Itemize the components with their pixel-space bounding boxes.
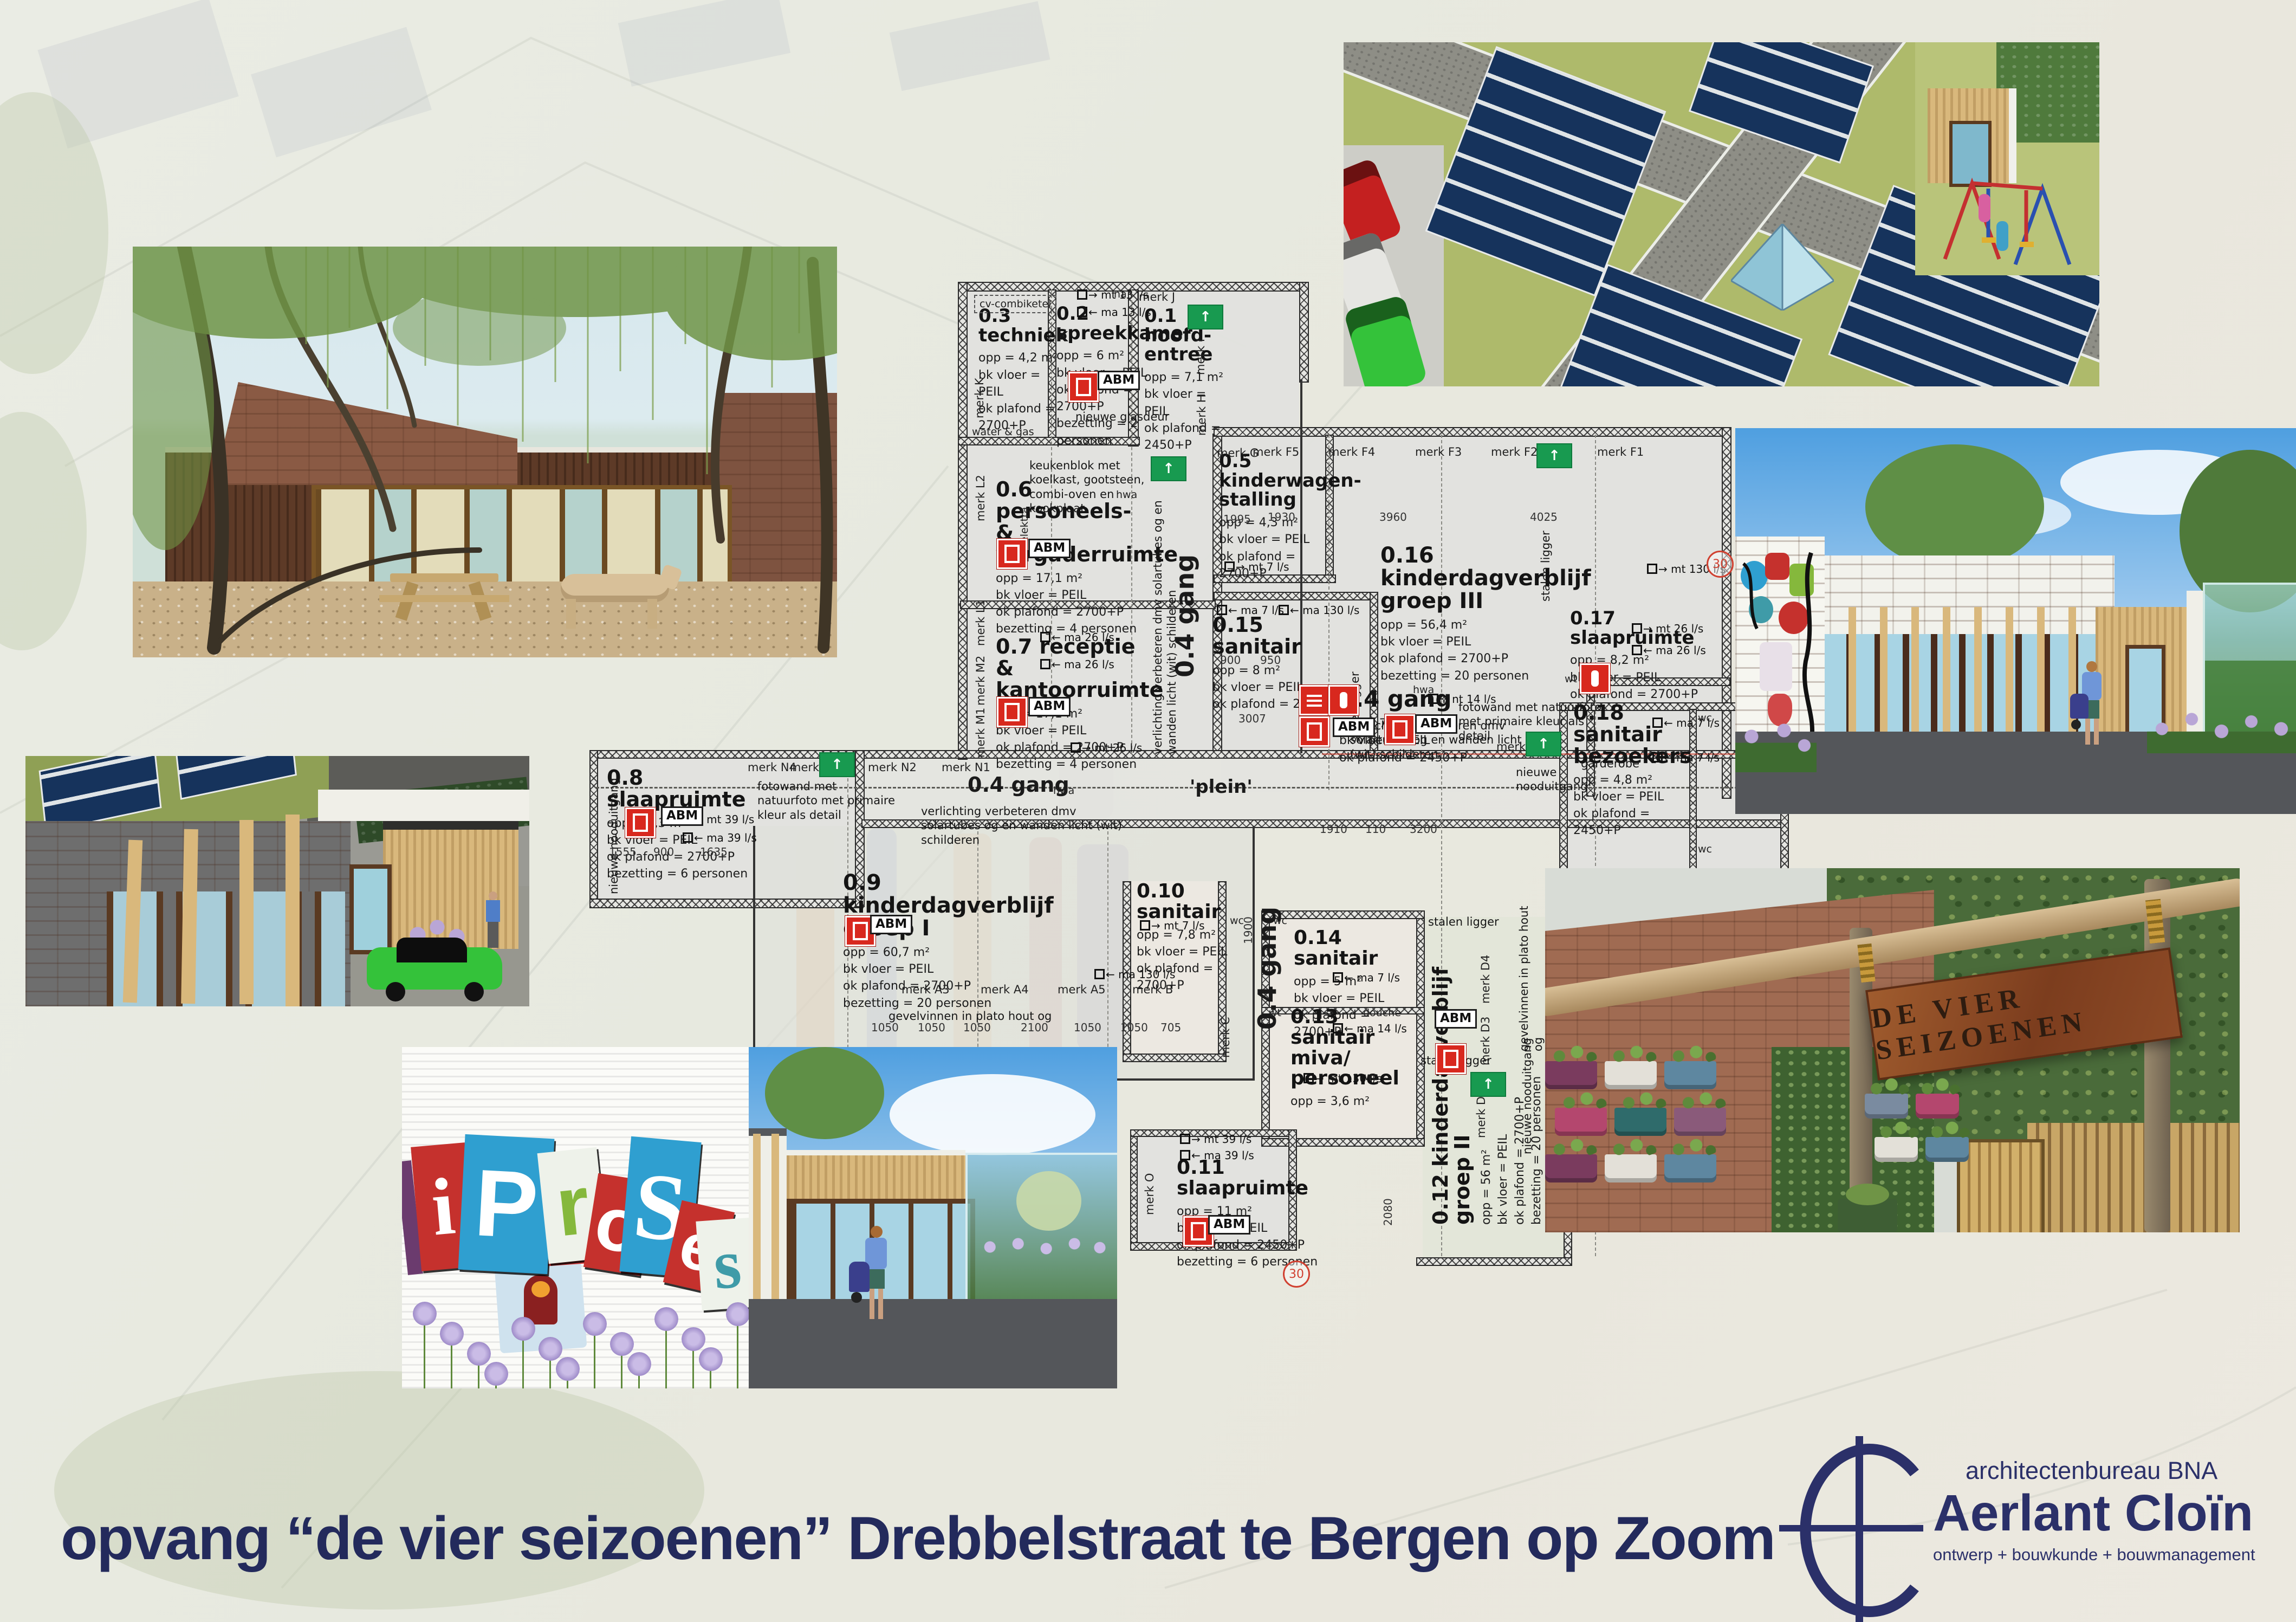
render-aerial [1344,42,2099,386]
planter-plants [1601,1137,1660,1158]
exit-sign-icon: ↑ [1470,1072,1506,1097]
abm-badge: ABM [661,806,703,826]
plan-note: verlichting verbeteren dmv solartubes og… [921,804,1124,847]
plan-note: nieuwe nooduitgang [1520,1019,1534,1154]
exit-sign-icon: ↑ [1526,732,1561,757]
vent-text: ← ma 7 l/s [1228,604,1284,617]
vent-label: ✛ nt 14 l/s [1428,693,1496,706]
allium-flower [583,1312,607,1336]
plan-grid-line [1107,826,1108,1080]
dimension-text: 1050 [871,1021,899,1034]
dimension-text: 950 [1260,654,1281,667]
kid-figure-1 [1979,194,1990,222]
merk-label: merk A3 [901,983,950,996]
vent-text: ✛ nt 14 l/s [1439,693,1496,706]
vent-icon [1303,1073,1314,1083]
plan-wall [589,750,598,907]
plan-wall [1214,427,1731,437]
fixture-label: elektra [1019,507,1030,543]
plan-wall [1214,592,1378,600]
fin-row [1825,607,2096,737]
plan-wall [1722,427,1731,799]
abm-badge: ABM [1028,697,1071,716]
fire-alarm-button-icon-glyph [1392,720,1408,739]
facade-windows [107,891,345,1006]
flower-bed-left [1735,713,1817,772]
fixture-label: hwa [1053,785,1074,797]
merk-label: merk N2 [868,761,917,774]
photo-courtyard [133,247,837,657]
logo-tagline: ontwerp + bouwkunde + bouwmanagement [1933,1545,2255,1565]
dimension-text: 1910 [1320,823,1347,836]
vent-text: ← ma 13 l/s [1088,306,1151,319]
render-entrance-facade [1735,428,2296,814]
fire-alarm-button-icon-glyph [1004,545,1020,563]
room-specs: opp = 17,1 m² bk vloer = PEIL ok plafond… [996,570,1142,638]
room-specs: opp = 4,2 m² bk vloer = PEIL ok plafond … [978,350,1062,434]
logo: architectenbureau BNA Aerlant Cloïn ontw… [1933,1457,2255,1565]
merk-label: merk C [1219,1017,1232,1058]
merk-label: merk N4 [748,761,796,774]
vent-icon [1333,972,1343,983]
fire-extinguisher-icon-glyph [1591,670,1599,687]
dimension-text: 3007 [1238,712,1266,725]
room-title: 0.5 kinderwagen- stalling [1219,452,1325,510]
exit-arrow-icon: ↑ [1199,309,1211,325]
plan-note: nieuwe nooduitgang [607,748,621,894]
exit-sign-icon: ↑ [1151,456,1186,481]
vent-text: ← ma 39 l/s [694,831,757,844]
kid-figure-2 [1996,221,2008,251]
vent-label: ← ma 39 l/s [683,831,757,844]
vent-text: ← ma 26 l/s [1643,644,1706,657]
fixture-label: hwa [1116,489,1137,501]
plan-wall [1123,1054,1227,1062]
planter-box [1674,1108,1726,1136]
timber-fin-3 [239,820,254,1004]
vent-icon [1040,632,1050,642]
fixture-label: wt [1565,673,1577,685]
dimension-text: 3200 [1410,823,1437,836]
plan-wall [1416,1257,1572,1266]
merk-label: merk M2 [974,656,987,706]
planter-box [1664,1154,1716,1182]
dimension-text: 900 [653,845,674,858]
room-title: 0.16 kinderdagverblijf groep III [1380,544,1613,612]
fire-alarm-button-icon [997,539,1027,569]
corridor-label: 'plein' [1190,776,1253,798]
swing-set [1934,134,2097,275]
plan-wall [1299,282,1309,383]
plan-wall [589,899,864,908]
room-title: 0.11 slaapruimte [1177,1158,1342,1199]
abm-badge: ABM [1333,718,1375,737]
dimension-text: 3960 [1379,510,1407,524]
vent-label: ← ma 7 l/s [1217,604,1284,617]
vent-icon [1217,605,1227,615]
man-figure [486,891,500,948]
timber-fin-4 [286,815,300,1006]
fire-alarm-button-icon [1299,716,1329,747]
fire-alarm-button-icon [1436,1044,1466,1074]
dimension-text: 900 [1220,654,1241,667]
planter-plants [1611,1090,1670,1111]
vent-icon [1279,605,1289,615]
vent-text: ← ma 26 l/s [1052,658,1114,671]
woman-stroller-2 [849,1226,898,1321]
planter-plants [1912,1076,1962,1097]
allium-flower [654,1307,678,1331]
fire-alarm-button-icon [997,697,1027,727]
allium-flower [539,1337,562,1361]
allium-flower [627,1352,651,1376]
fire-alarm-button-icon [625,807,656,838]
vent-label: ← ma 7 l/s [1652,751,1720,764]
vent-icon [1040,659,1050,669]
planter-plants [1661,1044,1720,1064]
vent-icon [1632,645,1642,655]
fixture-label: wc [1273,915,1287,927]
room-label-0.11: 0.11 slaapruimteopp = 11 m² bk vloer = P… [1177,1158,1342,1271]
ground-pot [1838,1199,1897,1232]
merk-label: merk I [1194,339,1207,375]
fixture-label: wt [1269,1007,1281,1019]
exit-sign-icon: ↑ [819,752,855,777]
planter-wall-mid [1865,1080,1973,1182]
exit-arrow-icon: ↑ [831,757,843,773]
exit-arrow-icon: ↑ [1163,461,1175,477]
plan-note: nieuwe nooduitgang [1516,765,1592,794]
dimension-text: 1930 [1268,510,1295,524]
entrance-render [749,1047,1117,1388]
fixture-label: wc [1364,1071,1378,1083]
vent-label: → mt 13 l/s [1077,288,1149,301]
vent-text: ← ma 7 l/s [1664,751,1720,764]
exit-sign-icon: ↑ [1536,443,1572,468]
planter-box [1614,1108,1666,1136]
plan-note: garderobe [1581,757,1662,771]
vent-label: → mt 26 l/s [1632,622,1703,635]
fire-alarm-button-icon-glyph [1443,1050,1458,1068]
flower-bed-right [2147,705,2296,753]
fixture-label: cv-combiketel [974,295,1056,313]
vent-text: ← ma 7 l/s [1344,971,1400,984]
sliver-fins [753,1134,786,1307]
planter-box [1916,1094,1959,1119]
allium-flower [682,1327,705,1351]
planter-plants [1601,1044,1660,1064]
fire-alarm-button-icon-glyph [633,813,648,832]
vent-text: → mt 26 l/s [1082,741,1142,754]
woman-stroller [2070,661,2119,748]
fixture-label: douche [1363,1007,1401,1019]
exit-arrow-icon: ↑ [1548,448,1560,464]
glass-pyramid [1731,224,1834,311]
vent-icon [1652,752,1663,762]
vent-label: ← ma 39 l/s [1180,1149,1254,1162]
paling-fence [2027,1123,2240,1232]
fire-hose-icon [1299,685,1329,715]
vent-icon [1652,718,1663,728]
vent-label: ← ma 26 l/s [1040,631,1114,644]
plan-wall [958,282,968,760]
vent-text: ← ma 26 l/s [1052,631,1114,644]
merk-label: merk D3 [1479,1017,1492,1065]
entrance-paving [749,1299,1117,1388]
plan-note: stalen ligger [1428,915,1509,929]
abm-badge: ABM [1098,371,1140,390]
white-parapet [318,790,529,821]
entrance-timber-band [787,1150,965,1204]
board-title: opvang “de vier seizoenen” Drebbelstraat… [61,1503,1775,1573]
vent-icon [1647,564,1657,574]
planter-plants [1552,1090,1610,1111]
planter-box [1555,1108,1607,1136]
vent-label: ← ma 13 l/s [1077,306,1151,319]
vent-label: ← ma 26 l/s [1632,644,1706,657]
room-label-0.9: 0.9 kinderdagverblijf groep Iopp = 60,7 … [843,871,1076,1012]
logo-bureau: architectenbureau BNA [1933,1457,2255,1485]
plan-wall [1130,1129,1138,1251]
vent-label: → mt 7 l/s [1140,919,1205,932]
fixture-label: hwa [1413,684,1434,696]
vent-text: → mt 7 l/s [1151,919,1205,932]
plan-wall [1261,1138,1425,1147]
planter-plants [1661,1137,1720,1158]
vent-label: ← ma 130 l/s [1094,968,1175,981]
abm-badge: ABM [870,915,912,934]
vent-icon [1094,969,1105,979]
fire-alarm-button-icon-glyph [1004,703,1020,721]
dimension-text: 705 [1160,1021,1181,1034]
fire-alarm-button-icon-glyph [1076,378,1091,396]
room-label-0.3: 0.3 techniekopp = 4,2 m² bk vloer = PEIL… [978,307,1062,435]
flower-stem [522,1333,524,1388]
room-title: 0.14 sanitair [1294,928,1416,969]
abm-badge: ABM [1208,1215,1250,1235]
vent-text: ← ma 130 l/s [1106,968,1175,981]
merk-label: merk B [1132,983,1173,996]
merk-label: merk M1 [974,708,987,758]
fire-extinguisher-icon [1580,663,1610,694]
abm-badge: ABM [1435,1009,1477,1029]
fire-alarm-button-icon [1385,714,1415,745]
vent-text: → mt 7 l/s [1236,560,1289,573]
vent-icon [1140,920,1150,930]
merk-label: merk F1 [1597,445,1644,458]
abm-badge: ABM [1415,714,1457,734]
planter-box [1545,1154,1597,1182]
room-specs: opp = 60,7 m² bk vloer = PEIL ok plafond… [843,944,1076,1012]
vent-label: ← ma 14 l/s [1333,1022,1407,1035]
merk-label: merk L1 [974,599,987,646]
room-specs: opp = 3,6 m² [1290,1093,1412,1110]
planter-wall-left [1545,1047,1740,1204]
vent-icon [1224,561,1235,572]
fixture-label: wc [1698,843,1712,855]
fixture-label: na [1114,288,1127,300]
allium-flower [511,1317,535,1341]
fire-alarm-button-icon-glyph [853,922,868,940]
merk-label: merk D4 [1479,955,1492,1004]
exit-arrow-icon: ↑ [1538,736,1549,752]
vent-text: ← ma 130 l/s [1290,604,1359,617]
dimension-text: 1995 [1223,513,1251,526]
planter-box [1865,1094,1908,1119]
vent-label: ← ma 130 l/s [1279,604,1359,617]
photo-sign-wall: DE VIER SEIZOENEN [1545,868,2240,1232]
merk-label: merk L2 [974,475,987,521]
planter-box [1605,1061,1657,1089]
vent-label: ← ma 7 l/s [1333,971,1400,984]
fixture-label: water & gas [972,426,1034,438]
vent-label: → mt 7 l/s [1224,560,1289,573]
presentation-board: 0.3 techniekopp = 4,2 m² bk vloer = PEIL… [0,0,2296,1622]
dimension-text: 2100 [1021,1021,1048,1034]
fire-alarm-button-icon-glyph [1307,722,1322,741]
abm-badge: ABM [1028,539,1071,558]
plan-note: verlichting verbeteren dmv solartubes og… [1151,483,1179,754]
vent-icon [1077,289,1087,300]
allium-flower [610,1332,634,1356]
plan-note: keukenblok met koelkast, gootsteen, comb… [1029,458,1162,515]
room-title: 0.15 sanitair [1212,615,1351,658]
allium-flower-row [402,1047,749,1388]
dimension-text: 2080 [1382,1198,1395,1226]
logo-mark [1778,1435,1935,1622]
flower-stem [665,1323,667,1388]
mural-wall: iProSes [402,1047,749,1388]
dimension-text: 1555 [609,845,637,858]
green-car-side [367,938,502,1000]
flower-stem [594,1328,595,1388]
vent-icon [1180,1134,1190,1144]
allium-flower [413,1302,437,1326]
render-mural-entrance: iProSes [402,1047,1117,1388]
vent-icon [1632,623,1642,634]
dimension-text: 1050 [963,1021,991,1034]
merk-label: merk F2 [1491,445,1538,458]
dimension-text: 1050 [1120,1021,1148,1034]
allium-flower [699,1347,723,1371]
exit-sign-icon: ↑ [1188,305,1223,329]
planter-box [1605,1154,1657,1182]
render-parking-side [25,756,529,1006]
flower-stem [737,1319,738,1388]
fire-hose-icon-glyph [1307,695,1322,697]
vent-text: → mt 26 l/s [1643,622,1703,635]
merk-label: merk H [1195,394,1208,436]
dimension-text: 110 [1365,823,1386,836]
merk-label: merk N1 [942,761,990,774]
fire-alarm-button-icon-glyph [1191,1222,1206,1240]
allium-flower [726,1302,750,1326]
dimension-text: 1900 [1242,916,1255,944]
allium-flower [556,1357,580,1381]
fire-extinguisher-icon [1328,685,1359,715]
planter-plants [1922,1120,1972,1140]
fixture-label: wc [1698,712,1712,724]
cloud-3 [890,1074,1095,1155]
exit-arrow-icon: ↑ [1482,1076,1494,1093]
logo-name: Aerlant Cloïn [1933,1485,2255,1542]
merk-label: merk A5 [1058,983,1106,996]
tree-3 [765,1047,884,1139]
planter-box [1545,1061,1597,1089]
planter-box [1875,1137,1918,1162]
merk-label: merk F3 [1415,445,1462,458]
dimension-text: 1635 [700,845,728,858]
vent-icon [1180,1150,1190,1160]
merk-label: merk A4 [981,983,1029,996]
fire-extinguisher-icon-glyph [1340,692,1347,708]
planter-box [1664,1061,1716,1089]
vent-text: → mt 39 l/s [1191,1133,1251,1146]
revision-bubble: 30 [1283,1261,1310,1288]
planter-plants [1671,1090,1729,1111]
revision-bubble: 30 [1707,551,1734,578]
vent-label: → mt 39 l/s [1180,1133,1251,1146]
vent-text: ← ma 14 l/s [1344,1022,1407,1035]
plan-note: fotowand met natuurfoto met primaire kle… [757,779,897,822]
plan-note: stalen ligger [1539,466,1553,602]
plan-wall [1689,709,1697,894]
dimension-text: 1050 [918,1021,945,1034]
flower-stem [424,1318,425,1388]
planter-box [1925,1137,1969,1162]
merk-label: merk O [1143,1173,1156,1215]
merk-label: merk F4 [1328,445,1375,458]
vent-label: → mt 26 l/s [1071,741,1142,754]
merk-label: merk K [973,378,986,418]
dimension-text: 4025 [1530,510,1558,524]
allium-flower [467,1342,491,1366]
room-title: 0.8 slaapruimte [607,767,750,811]
willow-branches [133,247,837,657]
planter-plants [1871,1120,1921,1140]
vent-icon [683,832,693,843]
tree-1 [1865,444,2044,569]
plan-note: nieuwe glasdeur [1075,410,1170,424]
planter-plants [1862,1076,1911,1097]
dimension-text: 1050 [1074,1021,1101,1034]
allium-flower [484,1362,508,1386]
allium-flower [440,1322,464,1346]
vent-text: ← ma 39 l/s [1191,1149,1254,1162]
fire-alarm-button-icon [1068,372,1099,402]
vent-label: ← ma 26 l/s [1040,658,1114,671]
vent-icon [1071,742,1081,753]
glass-screen [965,1153,1117,1303]
merk-label: merk F5 [1253,445,1299,458]
plan-facade-line [753,826,755,1081]
plan-wall [1416,910,1425,1147]
vent-icon [1333,1023,1343,1033]
vent-icon [1077,307,1087,317]
